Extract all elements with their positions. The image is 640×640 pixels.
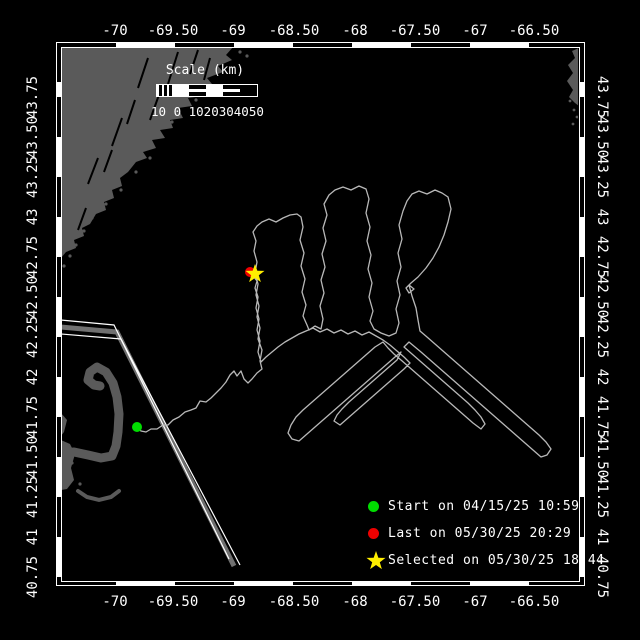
lon-tick-label: -69 xyxy=(201,594,265,610)
island-speckle xyxy=(65,468,68,471)
lat-tick-label: 40.75 xyxy=(25,556,41,598)
lat-tick-label: 43.75 xyxy=(594,76,610,118)
glider-track[interactable] xyxy=(137,186,551,457)
land-nova-scotia xyxy=(567,48,578,106)
island-speckle xyxy=(74,243,77,246)
island-speckle xyxy=(238,50,241,53)
lat-tick-label: 43.50 xyxy=(25,116,41,158)
scalebar-segment-hatch xyxy=(157,85,172,96)
scalebar xyxy=(156,84,258,97)
lat-tick-label: 43.50 xyxy=(594,116,610,158)
island-speckle xyxy=(119,188,122,191)
lat-tick-label: 42.50 xyxy=(594,276,610,318)
scalebar-segment-solid xyxy=(172,85,189,96)
island-speckle xyxy=(97,203,100,206)
island-speckle xyxy=(576,116,578,119)
legend-label: Last on 05/30/25 20:29 xyxy=(388,526,571,541)
island-speckle xyxy=(68,254,71,257)
lat-tick-label: 43.25 xyxy=(25,156,41,198)
lat-tick-label: 42 xyxy=(594,369,610,386)
land-maine-coast xyxy=(62,48,233,258)
scalebar-title: Scale (km) xyxy=(146,63,264,78)
island-speckle xyxy=(573,109,576,112)
lat-tick-label: 41.75 xyxy=(594,396,610,438)
legend-item-last: Last on 05/30/25 20:29 xyxy=(366,520,605,547)
lat-tick-label: 41.75 xyxy=(25,396,41,438)
island-speckle xyxy=(62,264,65,267)
land-monomoy-crescent xyxy=(78,491,119,500)
lat-tick-label: 41.50 xyxy=(25,436,41,478)
lon-tick-label: -70 xyxy=(83,23,147,39)
lon-tick-label: -67.50 xyxy=(383,594,447,610)
legend: Start on 04/15/25 10:59Last on 05/30/25 … xyxy=(366,493,605,574)
lat-tick-label: 43 xyxy=(594,209,610,226)
land-cape-cod-base xyxy=(62,440,75,490)
shipping-lane-edge xyxy=(62,320,229,559)
lat-tick-label: 42.75 xyxy=(25,236,41,278)
lon-tick-label: -69.50 xyxy=(141,594,205,610)
lat-tick-label: 41.25 xyxy=(594,476,610,518)
island-speckle xyxy=(134,170,137,173)
island-speckle xyxy=(90,216,93,219)
island-speckle xyxy=(194,98,197,101)
legend-item-start: Start on 04/15/25 10:59 xyxy=(366,493,605,520)
legend-label: Start on 04/15/25 10:59 xyxy=(388,499,580,514)
island-speckle xyxy=(70,461,73,464)
lon-tick-label: -68.50 xyxy=(262,23,326,39)
lon-tick-label: -67 xyxy=(443,23,507,39)
lat-tick-label: 40.75 xyxy=(594,556,610,598)
lon-tick-label: -67.50 xyxy=(383,23,447,39)
island-speckle xyxy=(572,123,575,126)
lon-tick-label: -70 xyxy=(83,594,147,610)
island-speckle xyxy=(569,100,572,103)
lat-tick-label: 42.75 xyxy=(594,236,610,278)
lat-tick-label: 43 xyxy=(25,209,41,226)
lon-tick-label: -67 xyxy=(443,594,507,610)
lat-tick-label: 43.25 xyxy=(594,156,610,198)
lon-tick-label: -66.50 xyxy=(502,23,566,39)
scalebar-segment-mid xyxy=(223,85,240,96)
lon-tick-label: -68 xyxy=(323,23,387,39)
start-marker[interactable] xyxy=(132,422,142,432)
island-speckle xyxy=(104,202,107,205)
land-cape-cod xyxy=(62,367,119,458)
island-speckle xyxy=(115,178,118,181)
star-icon xyxy=(366,551,388,571)
legend-label: Selected on 05/30/25 18:44 xyxy=(388,553,605,568)
lon-tick-label: -68 xyxy=(323,594,387,610)
scalebar-segment-dark xyxy=(240,85,257,96)
scalebar-segment-solid xyxy=(206,85,223,96)
island-speckle xyxy=(82,229,85,232)
glider-track-map: Scale (km) 10 0 1020304050 Start on 04/1… xyxy=(0,0,640,640)
island-speckle xyxy=(156,132,159,135)
lat-tick-label: 42.25 xyxy=(594,316,610,358)
land-shore-strip xyxy=(62,413,67,436)
lon-tick-label: -69 xyxy=(201,23,265,39)
lon-tick-label: -69.50 xyxy=(141,23,205,39)
lon-tick-label: -68.50 xyxy=(262,594,326,610)
lat-tick-label: 41 xyxy=(25,529,41,546)
island-speckle xyxy=(142,148,145,151)
island-speckle xyxy=(126,162,129,165)
dot-icon xyxy=(366,501,388,512)
lat-tick-label: 42 xyxy=(25,369,41,386)
lat-tick-label: 41.50 xyxy=(594,436,610,478)
shipping-lane-core xyxy=(62,327,234,566)
island-speckle xyxy=(170,120,173,123)
island-speckle xyxy=(148,156,151,159)
lat-tick-label: 42.50 xyxy=(25,276,41,318)
lat-tick-label: 41 xyxy=(594,529,610,546)
legend-item-selected: Selected on 05/30/25 18:44 xyxy=(366,547,605,574)
island-speckle xyxy=(78,482,81,485)
scalebar-ticks: 10 0 1020304050 xyxy=(151,104,267,119)
lat-tick-label: 43.75 xyxy=(25,76,41,118)
scalebar-segment-mid xyxy=(189,85,206,96)
lat-tick-label: 42.25 xyxy=(25,316,41,358)
island-speckle xyxy=(106,190,109,193)
lat-tick-label: 41.25 xyxy=(25,476,41,518)
lon-tick-label: -66.50 xyxy=(502,594,566,610)
island-speckle xyxy=(245,54,248,57)
dot-icon xyxy=(366,528,388,539)
